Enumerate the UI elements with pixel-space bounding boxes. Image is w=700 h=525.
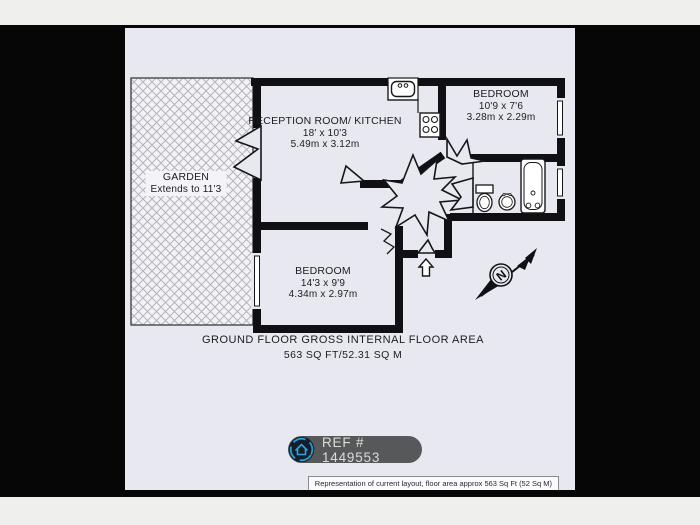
bedroom-bottom-imperial: 14'3 x 9'9 xyxy=(289,278,358,290)
kitchen-hob-icon xyxy=(420,113,440,137)
window-bathroom-right xyxy=(556,166,567,199)
window-left xyxy=(251,253,263,309)
reception-label: RECEPTION ROOM/ KITCHEN 18' x 10'3 5.49m… xyxy=(248,116,401,151)
bedroom-top-metric: 3.28m x 2.29m xyxy=(467,112,536,124)
window-bedroom-right xyxy=(556,98,567,138)
reception-imperial: 18' x 10'3 xyxy=(248,128,401,140)
toilet-icon xyxy=(476,185,493,212)
disclaimer-text: Representation of current layout, floor … xyxy=(308,476,559,490)
bedroom-top-name: BEDROOM xyxy=(467,89,536,101)
reception-name: RECEPTION ROOM/ KITCHEN xyxy=(248,116,401,128)
compass-icon: N xyxy=(475,248,537,300)
reception-metric: 5.49m x 3.12m xyxy=(248,139,401,151)
bedroom-top-imperial: 10'9 x 7'6 xyxy=(467,101,536,113)
bedroom-corner-zigzag xyxy=(381,229,394,254)
home-icon xyxy=(288,436,315,463)
basin-icon xyxy=(499,193,515,210)
reception-door xyxy=(341,166,364,183)
bedroom-top-door xyxy=(447,139,485,164)
floor-area-title: GROUND FLOOR GROSS INTERNAL FLOOR AREA xyxy=(202,334,484,346)
reference-badge: REF # 1449553 xyxy=(288,436,422,463)
bathtub-icon xyxy=(521,159,545,213)
garden-label: GARDEN Extends to 11'3 xyxy=(146,171,227,196)
bedroom-bottom-name: BEDROOM xyxy=(289,266,358,278)
bathroom-door xyxy=(451,178,473,210)
reference-number: REF # 1449553 xyxy=(322,435,422,465)
garden-note: Extends to 11'3 xyxy=(151,184,222,196)
garden-area xyxy=(131,78,253,325)
kitchen-sink-icon xyxy=(388,78,418,100)
entry-door xyxy=(418,240,435,253)
bedroom-bottom-metric: 4.34m x 2.97m xyxy=(289,289,358,301)
floorplan-sheet: N GARDEN Extends to 11'3 RECEPTION ROOM/… xyxy=(125,28,575,490)
floorplan-page: N GARDEN Extends to 11'3 RECEPTION ROOM/… xyxy=(0,0,700,525)
bedroom-bottom-label: BEDROOM 14'3 x 9'9 4.34m x 2.97m xyxy=(289,266,358,301)
bedroom-top-label: BEDROOM 10'9 x 7'6 3.28m x 2.29m xyxy=(467,89,536,124)
entrance-arrow-icon xyxy=(419,259,433,276)
floor-area-value: 563 SQ FT/52.31 SQ M xyxy=(284,349,402,361)
garden-name: GARDEN xyxy=(151,172,222,184)
